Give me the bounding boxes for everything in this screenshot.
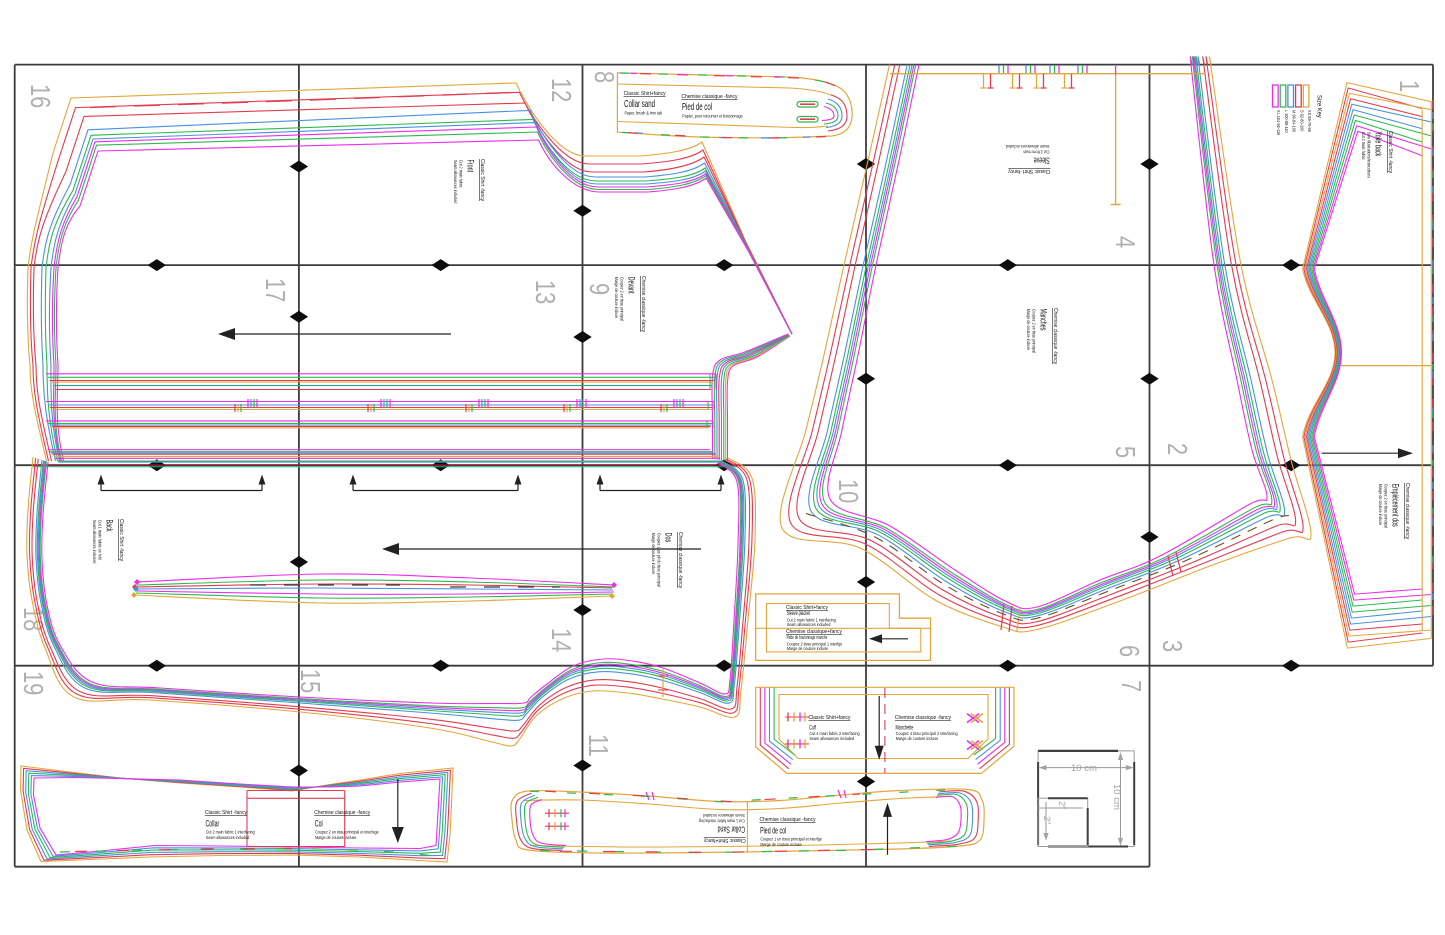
svg-text:5: 5 [1109, 446, 1140, 458]
svg-text:Chemise classique -fancy: Chemise classique -fancy [895, 715, 951, 721]
svg-text:XS 88-76-96: XS 88-76-96 [1307, 110, 1312, 132]
svg-text:2: 2 [1161, 443, 1192, 455]
svg-text:L 100-88-110: L 100-88-110 [1284, 110, 1289, 133]
svg-text:Classic Shirt+fancy: Classic Shirt+fancy [624, 91, 666, 97]
svg-text:Chemise classique -fancy: Chemise classique -fancy [314, 810, 370, 816]
svg-text:Yoke back: Yoke back [1373, 132, 1384, 157]
svg-text:10 cm: 10 cm [1111, 784, 1122, 810]
svg-text:Chemise classique -fancy: Chemise classique -fancy [677, 532, 683, 588]
svg-text:Marge de couture incluse: Marge de couture incluse [614, 277, 619, 319]
svg-text:Seam allowances included: Seam allowances included [809, 736, 854, 741]
svg-text:Seam allowance included: Seam allowance included [703, 813, 745, 818]
svg-text:Classic Shirt -fancy: Classic Shirt -fancy [479, 159, 485, 201]
svg-text:Dos: Dos [663, 533, 674, 543]
svg-text:2″: 2″ [1057, 801, 1067, 810]
svg-text:Chemise classique -fancy: Chemise classique -fancy [760, 817, 816, 823]
svg-text:S 92-80-100: S 92-80-100 [1299, 110, 1304, 132]
svg-text:Front: Front [465, 160, 476, 173]
svg-text:13: 13 [529, 280, 560, 304]
svg-text:Seam allowances included: Seam allowances included [1006, 144, 1050, 149]
svg-text:12: 12 [545, 78, 576, 102]
svg-text:9: 9 [583, 283, 614, 295]
svg-text:6: 6 [1113, 645, 1144, 657]
svg-text:Patte de boutonnage manche: Patte de boutonnage manche [787, 634, 828, 640]
svg-text:Devant: Devant [626, 277, 637, 295]
svg-text:Marge de couture incluse: Marge de couture incluse [896, 736, 939, 741]
svg-text:Classic Shirt+fancy: Classic Shirt+fancy [786, 605, 828, 611]
svg-text:8: 8 [588, 71, 619, 83]
svg-text:M 96-84-106: M 96-84-106 [1292, 110, 1297, 133]
svg-text:Seam allowances included: Seam allowances included [206, 835, 250, 840]
svg-text:Seam allowances included: Seam allowances included [453, 160, 458, 204]
svg-text:Marge de couture incluse: Marge de couture incluse [651, 533, 656, 575]
svg-text:Seam allowances included: Seam allowances included [92, 520, 97, 564]
svg-text:7: 7 [1115, 680, 1146, 692]
svg-text:3: 3 [1156, 640, 1187, 652]
svg-text:Cut 2 main fabric: Cut 2 main fabric [1361, 132, 1366, 160]
svg-text:Classic Shirt -fancy: Classic Shirt -fancy [1008, 168, 1050, 174]
svg-text:Chemise classique -fancy: Chemise classique -fancy [681, 94, 737, 100]
svg-text:Back: Back [104, 520, 115, 532]
svg-text:Empiècement dos: Empiècement dos [1390, 484, 1401, 527]
svg-text:Paper, brush & trim tab: Paper, brush & trim tab [624, 110, 662, 115]
svg-text:Papier, pour retourner et bout: Papier, pour retourner et boutonnage [682, 113, 743, 118]
svg-text:Sleeve: Sleeve [1034, 155, 1050, 166]
svg-text:XL 104-92-116: XL 104-92-116 [1276, 110, 1281, 136]
svg-text:Size Key: Size Key [1315, 95, 1323, 119]
svg-text:4: 4 [1109, 236, 1140, 248]
svg-text:Classic Shirt -fancy: Classic Shirt -fancy [1387, 131, 1393, 173]
svg-text:Collar: Collar [206, 818, 220, 829]
svg-text:17: 17 [259, 278, 290, 302]
svg-text:Seam allowances included: Seam allowances included [787, 622, 831, 627]
svg-text:Chemise classique -fancy: Chemise classique -fancy [1404, 483, 1410, 539]
svg-text:Collar Sand: Collar Sand [718, 824, 746, 835]
svg-text:2″: 2″ [1042, 816, 1052, 825]
svg-text:Collar sand: Collar sand [624, 97, 655, 109]
svg-text:Marge de couture incluse: Marge de couture incluse [760, 842, 802, 847]
svg-text:Manches: Manches [1038, 309, 1049, 331]
svg-text:15: 15 [294, 669, 325, 693]
svg-text:Chemise classique -fancy: Chemise classique -fancy [640, 276, 646, 332]
svg-text:1: 1 [1393, 80, 1424, 92]
svg-text:Pied de col: Pied de col [760, 825, 786, 836]
svg-text:Classic Shirt+fancy: Classic Shirt+fancy [703, 837, 745, 843]
svg-text:Marge de couture incluse: Marge de couture incluse [787, 646, 829, 651]
svg-text:Marge de couture incluse: Marge de couture incluse [1026, 309, 1031, 351]
svg-text:14: 14 [545, 628, 576, 652]
svg-text:Pied de col: Pied de col [682, 100, 712, 112]
svg-text:19: 19 [17, 671, 48, 695]
svg-text:11: 11 [582, 734, 613, 757]
svg-text:10 cm: 10 cm [1071, 763, 1097, 774]
svg-text:16: 16 [24, 84, 55, 108]
svg-text:Marge de couture incluse: Marge de couture incluse [315, 835, 357, 840]
svg-text:Classic Shirt -fancy: Classic Shirt -fancy [118, 519, 124, 561]
svg-text:Chemise classique -fancy: Chemise classique -fancy [1052, 308, 1058, 364]
svg-text:Marge de couture incluse: Marge de couture incluse [1378, 484, 1383, 526]
svg-text:10: 10 [832, 479, 863, 503]
svg-text:Classic Shirt -fancy: Classic Shirt -fancy [205, 810, 247, 816]
svg-text:Classic Shirt+fancy: Classic Shirt+fancy [809, 715, 851, 721]
svg-text:Col: Col [315, 818, 323, 829]
